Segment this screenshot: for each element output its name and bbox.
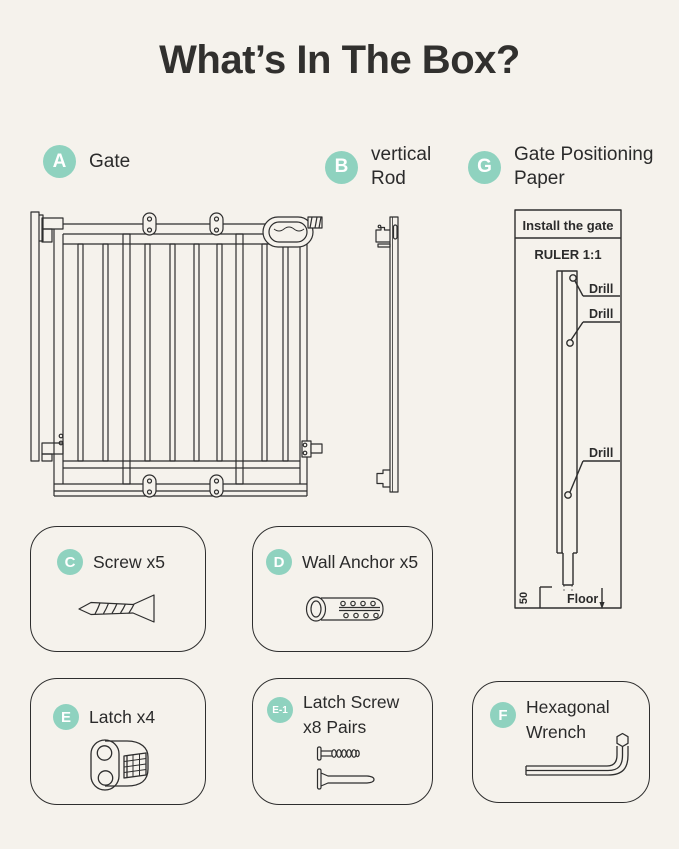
legend-label-line: vertical — [371, 143, 431, 167]
legend-label-line: Gate Positioning — [514, 143, 653, 167]
kit-box-latch-screw: E-1 Latch Screw x8 Pairs — [252, 678, 433, 805]
kit-label-latch: Latch x4 — [89, 705, 155, 730]
latch-screw-icon — [315, 745, 377, 791]
kit-box-screw: C Screw x5 — [30, 526, 206, 652]
kit-label-latch-screw: Latch Screw x8 Pairs — [303, 690, 399, 740]
paper-ruler-label: RULER 1:1 — [534, 247, 601, 262]
drill-label: Drill — [589, 307, 613, 321]
floor-label: Floor — [567, 592, 598, 606]
kit-label-line: x8 Pairs — [303, 715, 399, 740]
legend-label-vertical-rod: vertical Rod — [371, 143, 431, 191]
latch-icon — [89, 736, 151, 793]
whats-in-the-box-page: What’s In The Box? A Gate B vertical Rod… — [0, 0, 679, 849]
drill-label: Drill — [589, 282, 613, 296]
paper-header-label: Install the gate — [522, 218, 613, 233]
badge-d: D — [266, 549, 292, 575]
kit-label-line: Hexagonal — [526, 695, 610, 720]
floor-offset-label: 50 — [518, 592, 530, 604]
kit-box-latch: E Latch x4 — [30, 678, 206, 805]
positioning-paper-illustration: Install the gate RULER 1:1 Drill Drill D… — [512, 207, 627, 611]
kit-label-screw: Screw x5 — [93, 550, 165, 575]
badge-e: E — [53, 704, 79, 730]
badge-b: B — [325, 151, 358, 184]
kit-label-line: Latch Screw — [303, 690, 399, 715]
page-title: What’s In The Box? — [0, 38, 679, 83]
badge-a: A — [43, 145, 76, 178]
hex-wrench-icon — [524, 732, 631, 779]
legend-item-gate: A Gate — [43, 145, 130, 178]
badge-f: F — [490, 702, 516, 728]
vertical-rod-illustration — [368, 205, 408, 495]
legend-label-positioning-paper: Gate Positioning Paper — [514, 143, 653, 191]
badge-e1: E-1 — [267, 697, 293, 723]
legend-label-line: Paper — [514, 167, 653, 191]
kit-box-wall-anchor: D Wall Anchor x5 — [252, 526, 433, 652]
legend-item-positioning-paper: G Gate Positioning Paper — [468, 143, 653, 191]
badge-g: G — [468, 151, 501, 184]
gate-illustration — [25, 203, 325, 498]
drill-label: Drill — [589, 446, 613, 460]
legend-item-vertical-rod: B vertical Rod — [325, 143, 431, 191]
wall-anchor-icon — [301, 596, 386, 622]
legend-label-gate: Gate — [89, 150, 130, 174]
legend-label-line: Rod — [371, 167, 431, 191]
badge-c: C — [57, 549, 83, 575]
kit-label-wall-anchor: Wall Anchor x5 — [302, 550, 418, 575]
screw-icon — [77, 593, 157, 624]
kit-box-hex-wrench: F Hexagonal Wrench — [472, 681, 650, 803]
